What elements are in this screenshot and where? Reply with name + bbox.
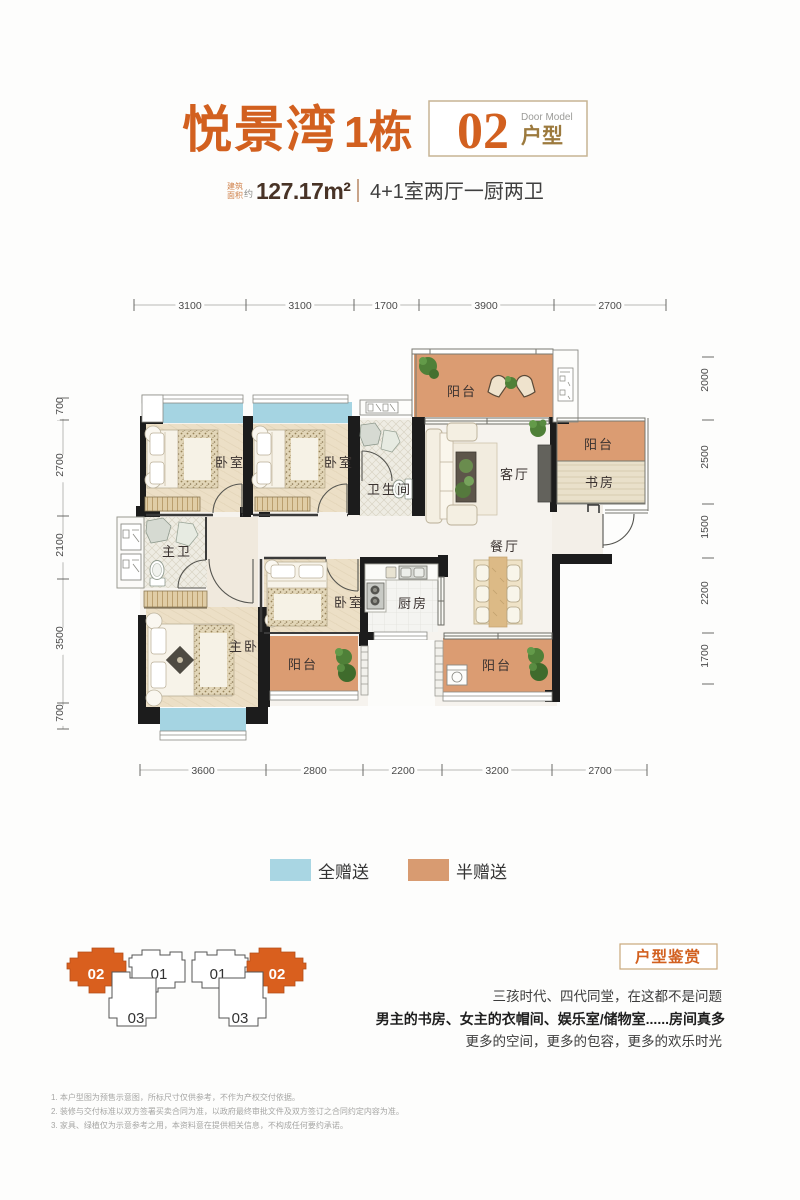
- svg-text:2100: 2100: [54, 533, 66, 557]
- svg-text:面积: 面积: [227, 190, 243, 200]
- svg-text:卧室: 卧室: [215, 455, 245, 470]
- svg-text:阳台: 阳台: [447, 384, 477, 399]
- svg-text:更多的空间，更多的包容，更多的欢乐时光: 更多的空间，更多的包容，更多的欢乐时光: [466, 1033, 723, 1049]
- svg-text:阳台: 阳台: [584, 437, 614, 452]
- svg-text:男主的书房、女主的衣帽间、娱乐室/储物室......房间真多: 男主的书房、女主的衣帽间、娱乐室/储物室......房间真多: [376, 1011, 725, 1027]
- svg-text:02: 02: [457, 103, 509, 160]
- svg-text:三孩时代、四代同堂，在这都不是问题: 三孩时代、四代同堂，在这都不是问题: [493, 988, 723, 1004]
- svg-text:127.17m²: 127.17m²: [256, 178, 351, 204]
- svg-text:3. 家具、绿植仅为示意参考之用，本资料意在提供相关信息，不: 3. 家具、绿植仅为示意参考之用，本资料意在提供相关信息，不构成任何要约承诺。: [51, 1120, 348, 1130]
- svg-text:1栋: 1栋: [344, 108, 412, 157]
- svg-text:全赠送: 全赠送: [318, 863, 369, 882]
- svg-text:700: 700: [54, 397, 66, 415]
- svg-text:2700: 2700: [54, 453, 66, 477]
- svg-text:2700: 2700: [588, 765, 612, 777]
- svg-text:03: 03: [128, 1010, 145, 1027]
- svg-text:悦景湾: 悦景湾: [182, 102, 338, 158]
- svg-text:主卧: 主卧: [229, 639, 259, 654]
- svg-text:3900: 3900: [474, 300, 498, 312]
- svg-text:阳台: 阳台: [288, 657, 318, 672]
- svg-text:书房: 书房: [585, 475, 615, 490]
- svg-text:3100: 3100: [288, 300, 312, 312]
- svg-text:2000: 2000: [699, 368, 711, 392]
- svg-text:2700: 2700: [598, 300, 622, 312]
- svg-text:Door Model: Door Model: [521, 112, 573, 123]
- svg-text:03: 03: [232, 1010, 249, 1027]
- svg-text:餐厅: 餐厅: [490, 539, 520, 554]
- svg-text:厨房: 厨房: [398, 596, 428, 611]
- svg-text:卫生间: 卫生间: [367, 482, 412, 497]
- svg-text:3100: 3100: [178, 300, 202, 312]
- svg-text:2800: 2800: [303, 765, 327, 777]
- svg-text:2500: 2500: [699, 445, 711, 469]
- svg-text:3500: 3500: [54, 626, 66, 650]
- svg-text:3600: 3600: [191, 765, 215, 777]
- svg-text:02: 02: [269, 966, 286, 983]
- svg-text:2200: 2200: [699, 581, 711, 605]
- svg-text:户型: 户型: [521, 124, 563, 148]
- svg-text:客厅: 客厅: [500, 467, 530, 482]
- svg-text:阳台: 阳台: [482, 658, 512, 673]
- svg-text:700: 700: [54, 704, 66, 722]
- svg-text:约: 约: [244, 188, 253, 199]
- svg-text:02: 02: [88, 966, 105, 983]
- svg-text:2200: 2200: [391, 765, 415, 777]
- svg-text:卧室: 卧室: [324, 455, 354, 470]
- svg-text:1700: 1700: [699, 644, 711, 668]
- svg-text:2. 装修与交付标准以双方签署买卖合同为准，以政府最终审批文: 2. 装修与交付标准以双方签署买卖合同为准，以政府最终审批文件及双方签订之合同约…: [51, 1106, 404, 1116]
- svg-text:1700: 1700: [374, 300, 398, 312]
- svg-text:3200: 3200: [485, 765, 509, 777]
- svg-text:建筑: 建筑: [227, 181, 243, 191]
- svg-text:4+1室两厅一厨两卫: 4+1室两厅一厨两卫: [370, 180, 544, 203]
- svg-text:半赠送: 半赠送: [456, 863, 507, 882]
- svg-text:户型鉴赏: 户型鉴赏: [635, 947, 701, 966]
- svg-text:卧室: 卧室: [334, 595, 364, 610]
- svg-text:1. 本户型图为预售示意图，所标尺寸仅供参考，不作为产权交付: 1. 本户型图为预售示意图，所标尺寸仅供参考，不作为产权交付依据。: [51, 1092, 300, 1102]
- svg-text:主卫: 主卫: [162, 544, 192, 559]
- svg-text:1500: 1500: [699, 515, 711, 539]
